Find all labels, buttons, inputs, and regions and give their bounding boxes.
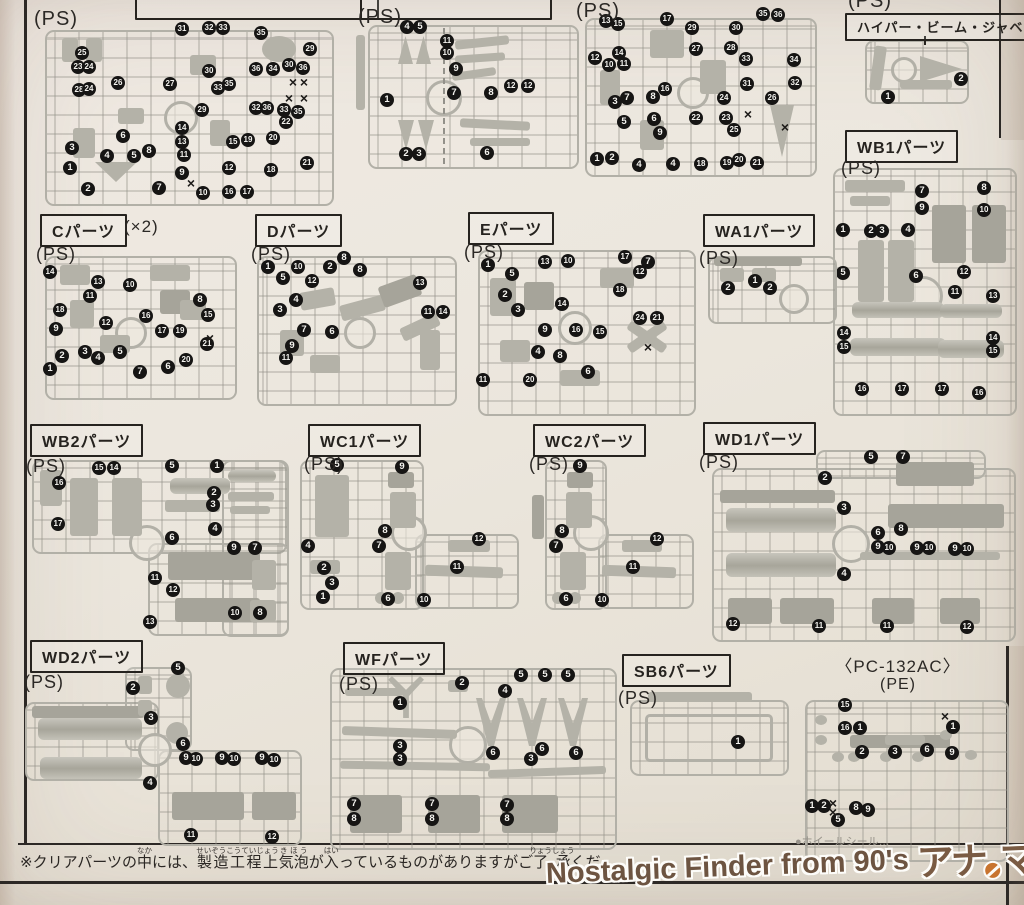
watermark-text: Nostalgic Finder from 90's [545, 844, 909, 891]
part-shape-wc2 [566, 492, 592, 528]
part-number-badge: 8 [353, 263, 367, 277]
footnote-segment: 中なか [137, 854, 152, 871]
part-number-badge: 35 [291, 105, 305, 119]
part-number-badge: 24 [717, 91, 731, 105]
part-number-badge: 17 [618, 250, 632, 264]
sprue-caption-hyper-beam-javelin: (PS) [848, 0, 892, 13]
part-number-badge: 2 [317, 561, 331, 575]
part-number-badge: 7 [347, 797, 361, 811]
part-shape-c [70, 300, 94, 328]
part-number-badge: 7 [447, 86, 461, 100]
part-number-badge: 6 [647, 112, 661, 126]
part-number-badge: 11 [279, 351, 293, 365]
footnote-segment: ※クリアパーツの [20, 854, 137, 871]
part-number-badge: 8 [553, 349, 567, 363]
part-number-badge: 13 [986, 289, 1000, 303]
part-shape-wb2 [228, 470, 276, 482]
part-shape-sb6 [648, 692, 752, 702]
part-number-badge: 25 [75, 46, 89, 60]
part-number-badge: 1 [748, 274, 762, 288]
part-number-badge: 10 [417, 593, 431, 607]
part-number-badge: 27 [163, 77, 177, 91]
part-number-badge: 2 [399, 147, 413, 161]
part-number-badge: 2 [455, 676, 469, 690]
part-number-badge: 7 [425, 797, 439, 811]
part-number-badge: 7 [896, 450, 910, 464]
part-number-badge: 32 [202, 21, 216, 35]
part-number-badge: 16 [972, 386, 986, 400]
part-number-badge: 6 [165, 531, 179, 545]
part-number-badge: 9 [653, 126, 667, 140]
sprue-caption-sb6: (PS) [618, 688, 658, 709]
part-number-badge: 5 [538, 668, 552, 682]
part-number-badge: 15 [837, 340, 851, 354]
part-number-badge: 9 [449, 62, 463, 76]
part-number-badge: 3 [875, 224, 889, 238]
part-shape-wd1 [726, 553, 836, 577]
part-number-badge: 2 [818, 471, 832, 485]
part-number-badge: 15 [201, 308, 215, 322]
part-shape-wd2 [166, 674, 190, 698]
part-number-badge: 8 [378, 524, 392, 538]
part-number-badge: 4 [91, 351, 105, 365]
part-number-badge: 3 [524, 752, 538, 766]
part-number-badge: 10 [123, 278, 137, 292]
part-number-badge: 1 [590, 152, 604, 166]
instruction-page: 3132333529252324262824302736343036333532… [0, 0, 1024, 905]
part-number-badge: 5 [617, 115, 631, 129]
part-shape-wb1 [932, 205, 966, 263]
part-number-badge: 6 [581, 365, 595, 379]
sprue-label-wc1: WC1パーツ [308, 424, 421, 457]
part-number-badge: 5 [171, 661, 185, 675]
part-number-badge: 4 [208, 522, 222, 536]
sprue-caption-runner-a: (PS) [34, 8, 78, 31]
part-number-badge: 3 [888, 745, 902, 759]
part-number-badge: 12 [305, 274, 319, 288]
part-number-badge: 4 [531, 345, 545, 359]
part-number-badge: 1 [43, 362, 57, 376]
runner-ring-d [344, 317, 376, 349]
part-number-badge: 1 [836, 223, 850, 237]
part-number-badge: 9 [49, 322, 63, 336]
part-number-badge: 5 [836, 266, 850, 280]
part-number-badge: 25 [727, 123, 741, 137]
part-number-badge: 10 [189, 752, 203, 766]
sprue-label-d: Dパーツ [255, 214, 342, 247]
part-number-badge: 13 [91, 275, 105, 289]
part-number-badge: 7 [297, 323, 311, 337]
part-number-badge: 12 [650, 532, 664, 546]
sprue-label-c: Cパーツ [40, 214, 127, 247]
x-mark: × [781, 120, 789, 134]
part-number-badge: 10 [228, 606, 242, 620]
part-number-badge: 16 [52, 476, 66, 490]
part-shape-wb2 [70, 478, 98, 536]
part-number-badge: 35 [756, 7, 770, 21]
part-number-badge: 8 [337, 251, 351, 265]
part-number-badge: 10 [561, 254, 575, 268]
part-number-badge: 24 [633, 311, 647, 325]
part-number-badge: 5 [561, 668, 575, 682]
part-number-badge: 30 [282, 58, 296, 72]
part-number-badge: 6 [381, 592, 395, 606]
part-number-badge: 17 [935, 382, 949, 396]
part-number-badge: 1 [881, 90, 895, 104]
footnote-segment: っているものがありますがご [339, 854, 533, 871]
part-number-badge: 36 [260, 101, 274, 115]
part-number-badge: 6 [569, 746, 583, 760]
part-number-badge: 4 [400, 20, 414, 34]
part-number-badge: 3 [144, 711, 158, 725]
part-shape-wb1 [858, 240, 884, 302]
part-number-badge: 14 [837, 326, 851, 340]
part-number-badge: 16 [855, 382, 869, 396]
part-number-badge: 5 [113, 345, 127, 359]
part-shape-d [310, 355, 340, 373]
part-number-badge: 18 [264, 163, 278, 177]
sprue-caption-c: (×2) [124, 217, 159, 237]
part-number-badge: 5 [165, 459, 179, 473]
sprue-label-wd2: WD2パーツ [30, 640, 143, 673]
part-number-badge: 8 [977, 181, 991, 195]
part-number-badge: 33 [739, 52, 753, 66]
part-number-badge: 29 [303, 42, 317, 56]
part-number-badge: 9 [945, 746, 959, 760]
part-number-badge: 9 [861, 803, 875, 817]
part-number-badge: 12 [960, 620, 974, 634]
part-number-badge: 2 [81, 182, 95, 196]
part-number-badge: 14 [107, 461, 121, 475]
part-number-badge: 30 [729, 21, 743, 35]
part-number-badge: 3 [393, 739, 407, 753]
part-shape-c [150, 265, 190, 281]
part-shape-wc1 [315, 475, 349, 537]
part-number-badge: 2 [954, 72, 968, 86]
part-shape-sb6 [645, 714, 773, 762]
part-shape-pc-132ac [965, 750, 977, 760]
part-number-badge: 5 [413, 20, 427, 34]
part-shape-wc1 [388, 472, 414, 488]
part-number-badge: 7 [372, 539, 386, 553]
part-number-badge: 12 [633, 265, 647, 279]
part-number-badge: 12 [472, 532, 486, 546]
part-shape-wc2 [567, 472, 593, 488]
sprue-caption-runner-c: (PS) [576, 0, 620, 23]
part-number-badge: 21 [750, 156, 764, 170]
part-shape-wd1 [780, 598, 834, 624]
part-number-badge: 9 [395, 460, 409, 474]
part-shape-d [420, 330, 440, 370]
part-shape-wd2 [38, 718, 142, 740]
part-number-badge: 11 [617, 57, 631, 71]
sprue-caption-wf: (PS) [339, 674, 379, 695]
part-number-badge: 9 [538, 323, 552, 337]
sprue-caption-e: (PS) [464, 242, 504, 263]
part-number-badge: 6 [480, 146, 494, 160]
part-shape-wb2 [228, 492, 274, 501]
part-number-badge: 1 [731, 735, 745, 749]
sprue-layer: 3132333529252324262824302736343036333532… [0, 0, 1024, 905]
part-number-badge: 4 [837, 567, 851, 581]
part-number-badge: 2 [605, 151, 619, 165]
part-shape-wd2 [252, 792, 296, 820]
part-number-badge: 2 [721, 281, 735, 295]
sprue-caption-c: (PS) [36, 244, 76, 265]
runner-ring-wa1 [779, 284, 809, 314]
part-number-badge: 1 [63, 161, 77, 175]
watermark-logo-char: ナ [950, 830, 986, 885]
part-number-badge: 17 [660, 12, 674, 26]
sprue-caption-wd1: (PS) [699, 452, 739, 473]
part-shape-wb1 [850, 196, 890, 206]
part-number-badge: 17 [51, 517, 65, 531]
part-number-badge: 16 [139, 309, 153, 323]
part-number-badge: 10 [267, 753, 281, 767]
part-number-badge: 31 [740, 77, 754, 91]
part-number-badge: 6 [559, 592, 573, 606]
part-number-badge: 12 [99, 316, 113, 330]
part-number-badge: 20 [732, 153, 746, 167]
part-shape-wc2 [560, 552, 586, 590]
part-number-badge: 1 [853, 721, 867, 735]
sprue-caption-wc1: (PS) [304, 454, 344, 475]
x-mark: × [289, 75, 297, 89]
part-number-badge: 31 [175, 22, 189, 36]
x-mark: × [187, 176, 195, 190]
part-number-badge: 11 [148, 571, 162, 585]
part-number-badge: 24 [82, 82, 96, 96]
footnote-segment: 入はい [324, 854, 339, 871]
footnote: ※クリアパーツの中なかには、製造工程上せいぞうこうていじょう気泡きほうが入はいっ… [20, 846, 601, 872]
part-number-badge: 3 [206, 498, 220, 512]
part-number-badge: 6 [920, 743, 934, 757]
part-number-badge: 10 [440, 46, 454, 60]
part-number-badge: 12 [166, 583, 180, 597]
part-shape-e [500, 340, 530, 362]
part-number-badge: 15 [986, 344, 1000, 358]
part-number-badge: 32 [788, 76, 802, 90]
part-number-badge: 6 [871, 526, 885, 540]
part-shape-runner-a [118, 108, 144, 124]
part-number-badge: 16 [658, 82, 672, 96]
sprue-label-e: Eパーツ [468, 212, 554, 245]
part-number-badge: 21 [300, 156, 314, 170]
part-number-badge: 10 [227, 752, 241, 766]
sprue-label-cut [135, 0, 379, 20]
part-shape-wc1 [390, 492, 416, 528]
part-number-badge: 29 [195, 103, 209, 117]
part-number-badge: 12 [504, 79, 518, 93]
part-number-badge: 8 [425, 812, 439, 826]
part-number-badge: 11 [880, 619, 894, 633]
part-number-badge: 17 [895, 382, 909, 396]
part-number-badge: 8 [142, 144, 156, 158]
part-number-badge: 5 [514, 668, 528, 682]
sprue-caption-pc-132ac: 〈PC-132AC〉 [835, 652, 960, 677]
part-number-badge: 3 [393, 752, 407, 766]
x-mark: × [744, 107, 752, 121]
part-number-badge: 20 [179, 353, 193, 367]
part-shape-pc-132ac [885, 735, 925, 745]
part-number-badge: 3 [325, 576, 339, 590]
part-number-badge: 8 [347, 812, 361, 826]
part-shape-runner-c [650, 30, 684, 58]
part-number-badge: 8 [646, 90, 660, 104]
sprue-caption-pc-132ac: (PE) [880, 676, 916, 694]
part-number-badge: 8 [253, 606, 267, 620]
part-number-badge: 15 [226, 135, 240, 149]
part-number-badge: 19 [173, 324, 187, 338]
sprue-caption-runner-b: (PS) [358, 6, 402, 29]
part-number-badge: 9 [915, 201, 929, 215]
part-number-badge: 13 [538, 255, 552, 269]
part-number-badge: 15 [92, 461, 106, 475]
part-number-badge: 10 [922, 541, 936, 555]
part-number-badge: 10 [196, 186, 210, 200]
part-number-badge: 1 [393, 696, 407, 710]
watermark-logo-char: マ [999, 828, 1024, 883]
part-number-badge: 21 [650, 311, 664, 325]
part-number-badge: 14 [43, 265, 57, 279]
part-number-badge: 7 [152, 181, 166, 195]
x-mark: × [206, 331, 214, 345]
sprue-caption-wd2: (PS) [24, 672, 64, 693]
sprue-caption-wc2: (PS) [529, 454, 569, 475]
part-number-badge: 3 [412, 147, 426, 161]
part-number-badge: 14 [555, 297, 569, 311]
part-shape-hyper-beam-javelin [900, 80, 952, 89]
part-number-badge: 11 [184, 828, 198, 842]
part-shape-wc2 [532, 495, 544, 539]
sprue-label-hyper-beam-javelin: ハイパー・ビーム・ジャベリン [845, 13, 1024, 41]
part-number-badge: 4 [143, 776, 157, 790]
part-number-badge: 6 [176, 737, 190, 751]
part-number-badge: 16 [222, 185, 236, 199]
part-shape-wc1 [385, 552, 411, 590]
part-shape-wb2 [168, 552, 260, 580]
part-number-badge: 9 [227, 541, 241, 555]
part-number-badge: 3 [78, 345, 92, 359]
sprue-label-wd1: WD1パーツ [703, 422, 816, 455]
part-number-badge: 18 [694, 157, 708, 171]
part-number-badge: 1 [316, 590, 330, 604]
part-shape-wd1 [872, 598, 914, 624]
footnote-segment: 製造工程上せいぞうこうていじょう [197, 854, 279, 871]
part-number-badge: 20 [266, 131, 280, 145]
part-number-badge: 6 [909, 269, 923, 283]
footnote-segment: には、 [152, 854, 197, 871]
part-shape-e [524, 282, 554, 310]
x-mark: × [941, 709, 949, 723]
part-number-badge: 2 [855, 745, 869, 759]
part-number-badge: 7 [620, 91, 634, 105]
part-number-badge: 16 [569, 323, 583, 337]
part-shape-runner-b [356, 35, 365, 110]
x-mark: × [829, 805, 837, 819]
part-number-badge: 7 [549, 539, 563, 553]
part-number-badge: 26 [111, 76, 125, 90]
part-number-badge: 3 [65, 141, 79, 155]
part-number-badge: 4 [100, 149, 114, 163]
part-number-badge: 22 [279, 115, 293, 129]
sprue-caption-wb2: (PS) [26, 456, 66, 477]
part-shape-wb2 [230, 506, 270, 514]
part-shape-wd1 [720, 490, 835, 503]
part-number-badge: 13 [413, 276, 427, 290]
part-number-badge: 3 [837, 501, 851, 515]
part-number-badge: 11 [812, 619, 826, 633]
part-shape-wb2 [175, 598, 260, 622]
part-number-badge: 9 [573, 459, 587, 473]
part-number-badge: 19 [241, 133, 255, 147]
part-number-badge: 15 [593, 325, 607, 339]
part-number-badge: 33 [216, 21, 230, 35]
part-number-badge: 36 [771, 8, 785, 22]
part-number-badge: 10 [595, 593, 609, 607]
part-number-badge: 8 [193, 293, 207, 307]
part-shape-wd1 [896, 462, 974, 486]
part-number-badge: 8 [894, 522, 908, 536]
part-number-badge: 6 [535, 742, 549, 756]
part-number-badge: 2 [126, 681, 140, 695]
part-number-badge: 10 [960, 542, 974, 556]
part-number-badge: 17 [155, 324, 169, 338]
part-shape-wb1 [845, 180, 905, 192]
part-number-badge: 11 [421, 305, 435, 319]
part-number-badge: 34 [266, 62, 280, 76]
sprue-label-wc2: WC2パーツ [533, 424, 646, 457]
sprue-caption-d: (PS) [251, 244, 291, 265]
part-number-badge: 13 [143, 615, 157, 629]
part-number-badge: 36 [249, 62, 263, 76]
watermark-logo-char: ア [916, 831, 952, 886]
part-number-badge: 11 [948, 285, 962, 299]
part-number-badge: 4 [901, 223, 915, 237]
part-number-badge: 11 [177, 148, 191, 162]
part-number-badge: 35 [254, 26, 268, 40]
part-number-badge: 12 [265, 830, 279, 844]
part-number-badge: 7 [133, 365, 147, 379]
part-number-badge: 11 [450, 560, 464, 574]
part-number-badge: 18 [613, 283, 627, 297]
part-shape-wa1 [720, 268, 744, 282]
part-number-badge: 4 [666, 157, 680, 171]
part-number-badge: 12 [588, 51, 602, 65]
part-number-badge: 12 [957, 265, 971, 279]
part-shape-wb2 [170, 478, 230, 494]
sprue-label-wa1: WA1パーツ [703, 214, 815, 247]
part-number-badge: 1 [380, 93, 394, 107]
part-number-badge: 15 [838, 698, 852, 712]
part-shape-wb1 [940, 304, 1002, 318]
part-number-badge: 24 [82, 60, 96, 74]
part-number-badge: 7 [248, 541, 262, 555]
part-number-badge: 7 [915, 184, 929, 198]
part-number-badge: 22 [689, 111, 703, 125]
part-number-badge: 5 [505, 267, 519, 281]
x-mark: × [300, 75, 308, 89]
part-number-badge: 6 [325, 325, 339, 339]
part-number-badge: 6 [116, 129, 130, 143]
part-number-badge: 8 [500, 812, 514, 826]
watermark-logo: アナマナバー [916, 824, 1024, 887]
part-shape-pc-132ac [815, 735, 827, 745]
sprue-label-wb2: WB2パーツ [30, 424, 143, 457]
part-number-badge: 14 [175, 121, 189, 135]
x-mark: × [285, 91, 293, 105]
part-shape-pc-132ac [815, 715, 827, 725]
